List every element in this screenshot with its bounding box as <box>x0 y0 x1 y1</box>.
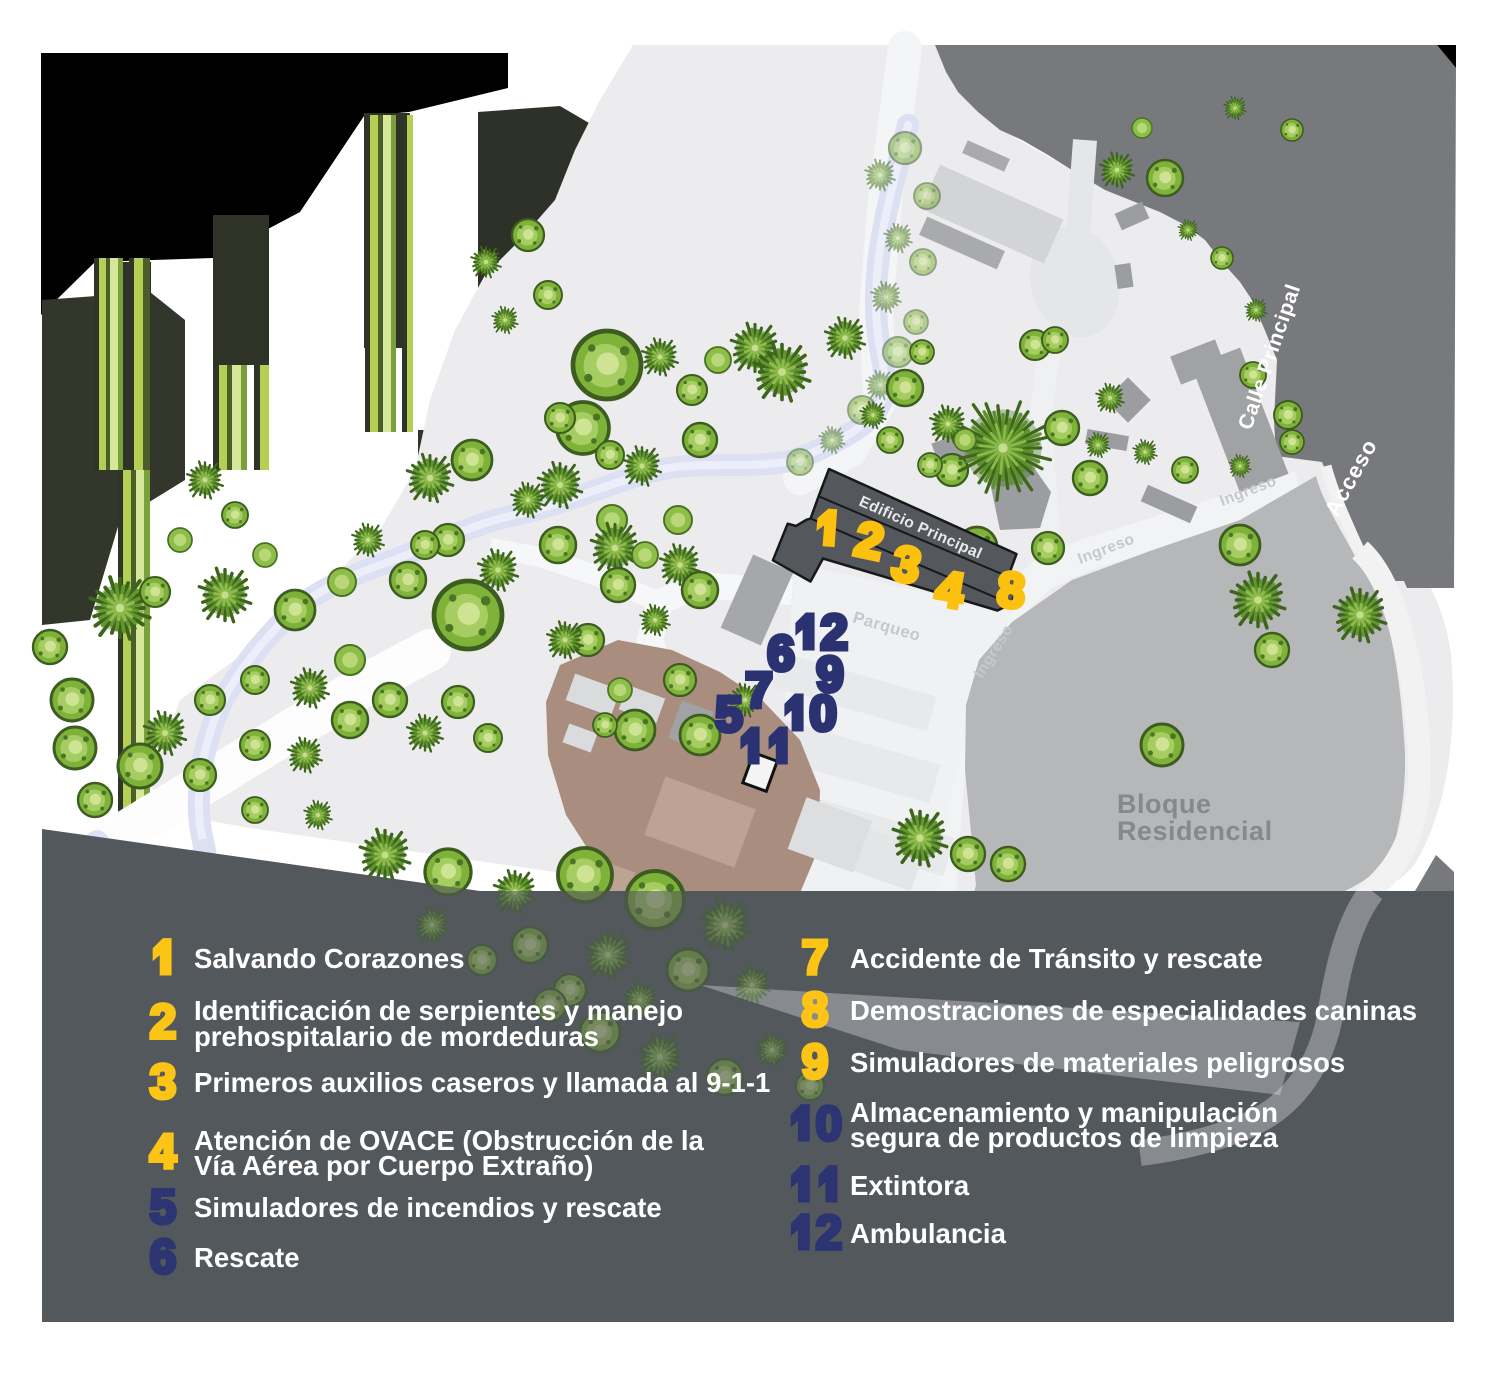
svg-text:3: 3 <box>150 1056 177 1109</box>
svg-text:Simuladores de materiales peli: Simuladores de materiales peligrosos <box>850 1047 1345 1078</box>
svg-text:5: 5 <box>150 1181 177 1234</box>
svg-text:Salvando Corazones: Salvando Corazones <box>194 943 465 974</box>
svg-text:9: 9 <box>802 1036 829 1089</box>
svg-text:Extintora: Extintora <box>850 1170 970 1201</box>
svg-text:segura de productos de limpiez: segura de productos de limpieza <box>850 1122 1279 1153</box>
svg-text:Bloque: Bloque <box>1117 789 1212 819</box>
svg-text:8: 8 <box>996 563 1027 619</box>
svg-text:Demostraciones de especialidad: Demostraciones de especialidades caninas <box>850 995 1417 1026</box>
svg-text:5: 5 <box>715 688 742 742</box>
svg-text:prehospitalario de mordeduras: prehospitalario de mordeduras <box>194 1021 599 1052</box>
svg-text:0: 0 <box>815 1098 842 1151</box>
svg-text:Rescate: Rescate <box>194 1242 300 1273</box>
svg-text:Ambulancia: Ambulancia <box>850 1218 1007 1249</box>
svg-text:8: 8 <box>802 984 829 1037</box>
svg-text:7: 7 <box>745 664 772 718</box>
svg-text:Accidente de Tránsito y rescat: Accidente de Tránsito y rescate <box>850 943 1263 974</box>
svg-text:6: 6 <box>150 1231 177 1284</box>
svg-text:Simuladores de incendios y res: Simuladores de incendios y rescate <box>194 1192 662 1223</box>
svg-text:Primeros auxilios caseros y ll: Primeros auxilios caseros y llamada al 9… <box>194 1067 770 1098</box>
svg-text:2: 2 <box>815 1207 842 1260</box>
svg-text:Residencial: Residencial <box>1117 816 1273 846</box>
svg-text:Vía Aérea por Cuerpo Extraño): Vía Aérea por Cuerpo Extraño) <box>194 1150 593 1181</box>
svg-text:2: 2 <box>150 996 177 1049</box>
svg-text:4: 4 <box>150 1126 177 1179</box>
svg-text:7: 7 <box>802 932 829 985</box>
svg-text:0: 0 <box>809 687 836 741</box>
